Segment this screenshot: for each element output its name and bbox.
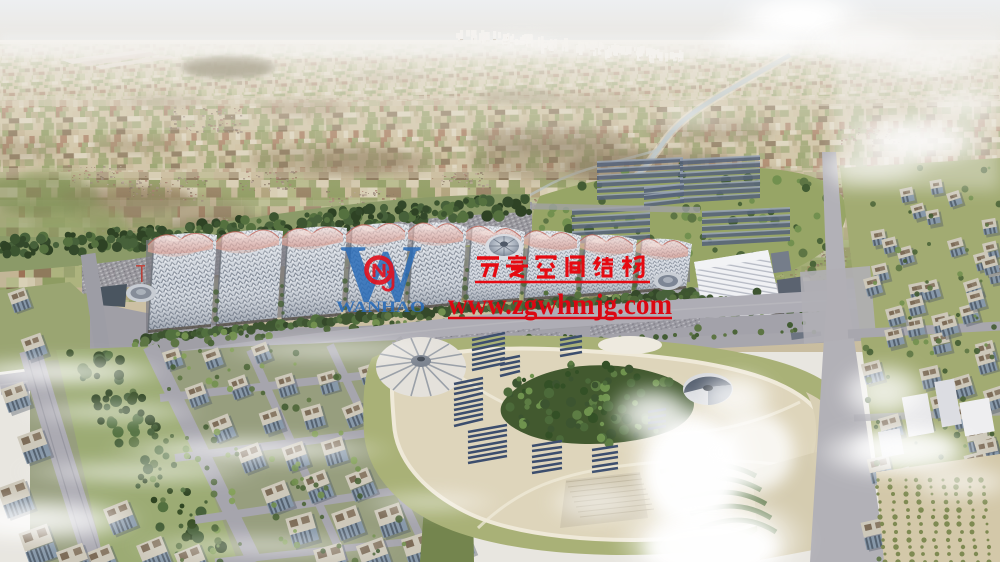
- svg-text:www.zgwhmjg.com: www.zgwhmjg.com: [448, 288, 672, 321]
- svg-text:WANHAO: WANHAO: [336, 299, 425, 316]
